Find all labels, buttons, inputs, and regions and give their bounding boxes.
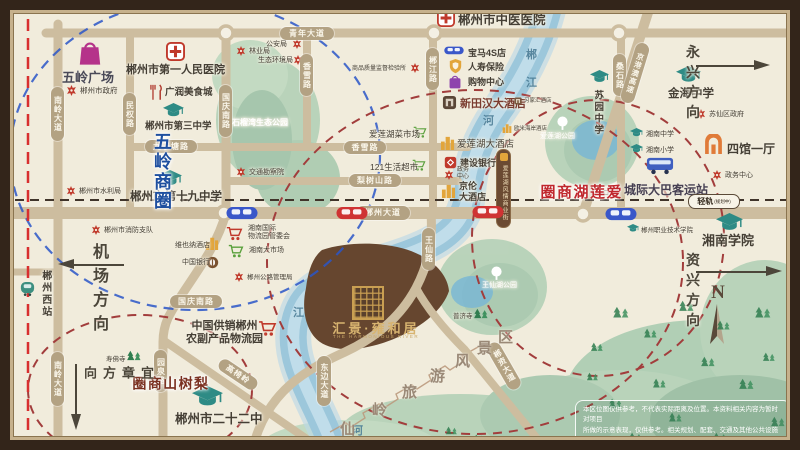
poi-label-four-halls: 四馆一厅 [727, 142, 775, 156]
poi-label-line: 中国供销郴州 [186, 320, 263, 333]
pine-tree-icon [700, 356, 716, 368]
pine-tree-icon [643, 328, 658, 339]
poi-label-line: 普济寺 [453, 313, 473, 321]
shopping-cart-icon [226, 226, 243, 241]
business-circle-wuling-circle: 五岭商圈 [154, 133, 174, 212]
car-icon [444, 46, 464, 55]
direction-arrow-yongxing [696, 57, 770, 75]
poi-label-line: 郴州市中医医院 [458, 13, 546, 28]
poi-label-wuling-plaza: 五岭广场 [62, 70, 114, 85]
compass-north-label: N [703, 282, 733, 304]
poi-label-line: 寿佛寺 [106, 356, 126, 364]
poi-label-gov-service-east: 政务中心 [725, 172, 753, 180]
road-label-国庆南路: 国庆南路 [170, 295, 222, 308]
shopping-bag-icon [78, 40, 102, 66]
project-name-en: THE HARMONIOUS RIVER [324, 334, 428, 339]
bus-icon [646, 156, 674, 175]
restaurant-icon [150, 84, 163, 101]
direction-airport: 机场方向 [93, 238, 111, 334]
hotel-building-icon [514, 97, 522, 105]
poi-label-line: 农副产品物流园 [186, 333, 263, 346]
poi-label-line: 湘南中学 [646, 131, 674, 139]
scenic-area-label: 旅 [402, 381, 417, 402]
poi-label-line: 中国银行 [182, 259, 210, 267]
poi-label-line: 湘南学院 [702, 233, 754, 248]
poi-label-line: 郴州市第十九中学 [130, 191, 222, 205]
poi-label-line: 人寿保险 [468, 62, 504, 73]
school-cap-icon [630, 144, 643, 153]
poi-label-vienna-hotel: 维也纳酒店 [175, 242, 210, 250]
poi-label-line: 习家汇酒店 [524, 98, 552, 104]
poi-label-gov-service-west: 政务中心 [457, 167, 469, 181]
scenic-area-label: 游 [430, 365, 445, 386]
shopping-cart-icon [228, 244, 244, 258]
gov-star-icon [236, 46, 246, 56]
river-label: 河 [483, 112, 494, 128]
poi-label-line: 商品质量监督检验所 [352, 66, 406, 73]
pine-tree-icon [473, 434, 485, 443]
pine-tree-icon [652, 378, 667, 389]
park-tree-icon [490, 266, 503, 281]
gov-star-icon [66, 85, 77, 96]
disclaimer-line: 本区位图仅供参考，不代表实际距离及位置。本资料相关内容为暂时对项目 [583, 405, 783, 426]
poi-label-line: 郴州市政府 [80, 87, 118, 96]
bus-stop-car-icon [472, 205, 504, 219]
direction-yongxing: 永兴方向 [686, 42, 702, 122]
poi-label-line: 购物中心 [468, 77, 504, 88]
pine-tree-icon [586, 372, 599, 381]
building-icon [440, 135, 455, 150]
poi-label-xiangnan-primary: 湘南小学 [646, 147, 674, 155]
poi-label-quality-bureau: 商品质量监督检验所 [352, 66, 406, 73]
poi-label-fire-brigade: 郴州市消防支队 [104, 227, 153, 235]
pine-tree-icon [762, 352, 776, 362]
poi-label-xiangnan-middle: 湘南中学 [646, 131, 674, 139]
scenic-area-label: 风 [455, 350, 470, 371]
gov-star-icon [91, 225, 101, 235]
building-icon [441, 183, 456, 198]
poi-label-line: 京伦 [459, 181, 486, 192]
pine-tree-icon [590, 342, 604, 352]
school-cap-icon [716, 213, 743, 232]
pine-tree-icon [445, 426, 458, 435]
business-circle-line: 商圈 [154, 173, 174, 213]
disclaimer-line: 所做的示意表现，仅供参考。相关规划、配套、交通及其他公共设施等情 [583, 426, 783, 447]
road-label-香雪路: 香雪路 [344, 141, 386, 154]
poi-label-line: 大酒店 [459, 192, 486, 203]
poi-label-line: 石榴湾生态公园 [232, 118, 288, 127]
light-rail-label: 轻轨 [697, 196, 713, 207]
gov-star-icon [292, 39, 302, 49]
poi-label-water-bureau: 郴州市水利局 [79, 188, 121, 196]
poi-label-logistics-committee: 湘南国际物流园管委会 [248, 225, 290, 242]
poi-label-bmw-4s: 宝马4S店 [468, 48, 506, 59]
poi-label-line: 湘南国际 [248, 225, 290, 233]
poi-label-line: 郴州西站 [39, 270, 51, 318]
poi-label-tcm-hospital: 郴州市中医医院 [458, 13, 546, 28]
direction-arrow-airport [58, 256, 124, 274]
pine-trees-icon [126, 350, 142, 362]
arch-building-icon [703, 134, 724, 155]
poi-label-line: 宝马4S店 [468, 48, 506, 59]
poi-label-ailianhu-market: 爱莲湖菜市场 [369, 129, 420, 139]
poi-label-line: 政务中心 [725, 172, 753, 180]
poi-label-line: 维也纳酒店 [175, 242, 210, 250]
hospital-cross-icon [437, 9, 455, 27]
school-cap-icon [630, 128, 643, 137]
poi-label-city-gov: 郴州市政府 [80, 87, 118, 96]
poi-label-first-hospital: 郴州市第一人民医院 [126, 64, 225, 77]
pine-tree-icon [415, 436, 427, 445]
bus-stop-car-icon [226, 206, 258, 220]
poi-label-food-city: 广润美食城 [165, 87, 213, 98]
road-label-民权路: 民权路 [123, 93, 136, 135]
pine-tree-icon [738, 378, 755, 390]
river-label: 江 [526, 74, 537, 90]
poi-label-line: 郴州市消防支队 [104, 227, 153, 235]
poi-label-line: 郴州市第三中学 [145, 121, 212, 132]
road-label-香雪路: 香雪路 [300, 54, 313, 96]
poi-label-line: 郴州市二十二中 [175, 412, 263, 427]
road-label-南岭大道: 南岭大道 [51, 352, 64, 406]
poi-label-highway-bureau: 郴州公路管理局 [247, 274, 293, 282]
poi-label-line: 物流园管委会 [248, 233, 290, 241]
poi-label-eco-bureau: 生态环境局 [258, 57, 293, 65]
school-cap-icon [590, 70, 609, 83]
project-seal-icon [352, 286, 384, 320]
poi-label-line: 湘南大市场 [249, 247, 284, 255]
building-icon [502, 123, 512, 133]
scenic-area-label: 岭 [372, 399, 387, 420]
poi-label-no22-school: 郴州市二十二中 [175, 412, 263, 427]
river-label: 郴 [526, 46, 537, 62]
poi-label-line: 苏仙区政府 [709, 111, 744, 119]
poi-label-ailianhu-park: 爱莲湖公园 [540, 133, 575, 141]
poi-label-xijiahui-hotel: 习家汇酒店 [524, 98, 552, 104]
direction-arrow-zixing [696, 263, 782, 281]
poi-label-jinglun-hotel: 京伦大酒店 [459, 181, 486, 202]
poi-label-line: 欧米海岸酒店 [514, 126, 547, 132]
poi-label-bank-of-china: 中国银行 [182, 259, 210, 267]
poi-label-no3-school: 郴州市第三中学 [145, 121, 212, 132]
poi-label-line: 郴州公路管理局 [247, 274, 293, 282]
poi-label-xiangnan-market: 湘南大市场 [249, 247, 284, 255]
business-circle-line: 五岭 [154, 133, 174, 173]
pine-tree-icon [716, 320, 731, 331]
poi-label-line: 爱莲湖公园 [540, 133, 575, 141]
pine-tree-icon [754, 306, 772, 319]
poi-label-shopping-center: 购物中心 [468, 77, 504, 88]
poi-label-vocational-college: 郴州职业技术学院 [641, 227, 693, 235]
poi-label-market-121: 121生活超市 [370, 162, 418, 172]
bank-icon [444, 156, 457, 169]
park-tree-icon [556, 116, 569, 131]
road-label-南岭大道: 南岭大道 [51, 87, 64, 141]
gov-star-icon [236, 167, 246, 177]
poi-label-line: 王仙湖公园 [482, 282, 517, 290]
direction-zixing: 资兴方向 [686, 250, 702, 330]
poi-label-line: 郴州职业技术学院 [641, 227, 693, 235]
train-icon [19, 281, 36, 296]
map-canvas: 五岭广场郴州市政府郴州市第一人民医院广润美食城郴州市第三中学郴州市水利局郴州市第… [0, 0, 800, 450]
poi-label-oumi-hotel: 欧米海岸酒店 [514, 126, 547, 132]
scenic-area-label: 仙 [340, 418, 355, 439]
poi-label-line: 生态环境局 [258, 57, 293, 65]
scenic-area-label: 景 [477, 337, 492, 358]
poi-label-no19-school: 郴州市第十九中学 [130, 191, 222, 205]
disclaimer-box: 本区位图仅供参考，不代表实际距离及位置。本资料相关内容为暂时对项目所做的示意表现… [575, 400, 791, 450]
poi-label-supply-logistics-park: 中国供销郴州农副产品物流园 [186, 320, 263, 346]
light-rail-capsule: 轻轨 (规划中) [688, 194, 740, 209]
poi-label-line: 公安局 [266, 41, 287, 49]
gov-star-icon [66, 186, 76, 196]
river-label: 江 [293, 304, 304, 320]
hotel-building-icon [442, 95, 457, 110]
scenic-area-label: 区 [498, 326, 513, 347]
poi-label-chenzhou-west-station: 郴州西站 [39, 270, 51, 318]
poi-label-line: 四馆一厅 [727, 142, 775, 156]
poi-label-line: 121生活超市 [370, 162, 418, 172]
road-label-郴江路: 郴江路 [426, 48, 439, 90]
poi-label-traffic-survey: 交通勘察院 [249, 169, 284, 177]
poi-label-shoufo-temple: 寿佛寺 [106, 356, 126, 364]
poi-label-suxian-gov: 苏仙区政府 [709, 111, 744, 119]
poi-label-line: 广润美食城 [165, 87, 213, 98]
poi-label-life-insurance: 人寿保险 [468, 62, 504, 73]
road-label-梨树山路: 梨树山路 [349, 174, 401, 187]
poi-label-xiangnan-college: 湘南学院 [702, 233, 754, 248]
bus-stop-car-icon [336, 206, 368, 220]
poi-label-line: 五岭广场 [62, 70, 114, 85]
poi-label-police-bureau: 公安局 [266, 41, 287, 49]
poi-label-line: 郴州市第一人民医院 [126, 64, 225, 77]
direction-arrow-yizhang [70, 364, 82, 435]
gov-star-icon [444, 170, 454, 180]
road-label-王仙路: 王仙路 [422, 228, 435, 270]
insurance-shield-icon [449, 59, 462, 74]
school-cap-icon [163, 103, 184, 118]
disclaimer-line: 况，最终以政府有关部门批准的文件、图则为准。 [583, 447, 783, 450]
gov-star-icon [234, 272, 244, 282]
school-cap-icon [627, 224, 639, 233]
road-label-东边大道: 东边大道 [317, 356, 331, 406]
bus-stop-car-icon [605, 207, 637, 221]
poi-label-suyuan-school: 苏园中学 [592, 90, 603, 136]
pine-trees-icon [473, 308, 489, 320]
direction-yizhang: 宜章方向 [80, 366, 156, 381]
shopping-bag-icon [448, 74, 462, 90]
light-rail-note: (规划中) [714, 199, 731, 205]
gov-star-icon [410, 63, 420, 73]
poi-label-shiliuwan-park: 石榴湾生态公园 [232, 118, 288, 127]
road-label-青年大道: 青年大道 [280, 27, 334, 40]
poi-label-line: 爱莲湖菜市场 [369, 129, 420, 139]
location-map: 五岭广场郴州市政府郴州市第一人民医院广润美食城郴州市第三中学郴州市水利局郴州市第… [0, 0, 800, 450]
road-label-国庆南路: 国庆南路 [219, 85, 232, 137]
poi-label-line: 交通勘察院 [249, 169, 284, 177]
poi-label-wangxianhu-park: 王仙湖公园 [482, 282, 517, 290]
business-circle-line: 爱莲湖商圈 [538, 184, 621, 201]
poi-label-line: 苏园中学 [592, 90, 603, 136]
poi-label-puji-temple: 普济寺 [453, 313, 473, 321]
hospital-cross-icon [166, 42, 185, 61]
pine-tree-icon [612, 306, 630, 319]
poi-label-line: 郴州市水利局 [79, 188, 121, 196]
poi-label-line: 湘南小学 [646, 147, 674, 155]
gov-star-icon [712, 170, 722, 180]
business-circle-ailianhu-circle: 爱莲湖商圈 [538, 184, 621, 201]
